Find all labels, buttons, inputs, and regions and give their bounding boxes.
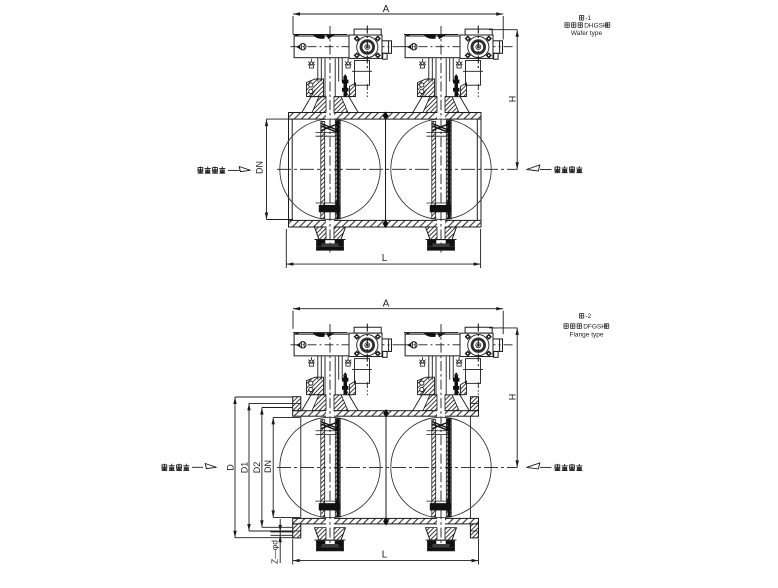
svg-text:H: H [508, 96, 518, 103]
svg-text:L: L [382, 550, 388, 561]
svg-text:DHGSH: DHGSH [584, 22, 608, 29]
svg-text:Z—φd: Z—φd [270, 540, 280, 564]
svg-text:D: D [225, 464, 235, 471]
svg-text:-2: -2 [586, 313, 592, 320]
svg-text:Flange type: Flange type [570, 332, 604, 339]
svg-text:A: A [383, 4, 390, 15]
svg-text:Wafer type: Wafer type [571, 30, 603, 37]
svg-text:H: H [508, 394, 518, 401]
svg-text:D2: D2 [252, 462, 262, 474]
svg-text:L: L [382, 253, 388, 264]
svg-text:DFGSH: DFGSH [583, 323, 606, 330]
svg-text:-1: -1 [586, 15, 592, 22]
svg-text:DN: DN [255, 161, 265, 174]
svg-text:D1: D1 [239, 462, 249, 474]
svg-text:A: A [383, 299, 390, 310]
svg-text:DN: DN [263, 460, 273, 473]
